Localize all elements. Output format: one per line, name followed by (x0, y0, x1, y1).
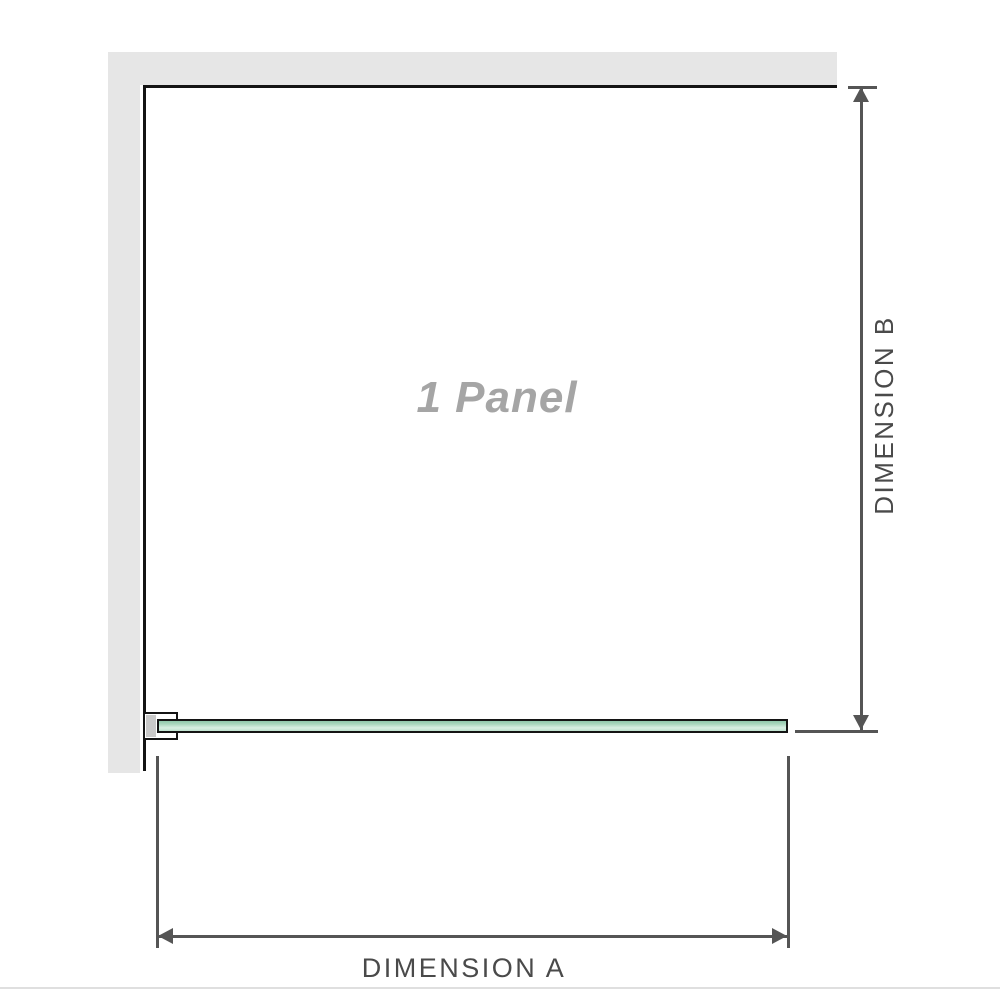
dimension-a-line (158, 935, 788, 938)
panel-extent-top-line (143, 85, 837, 88)
wall-top-bar (108, 52, 837, 85)
dimension-a-label: DIMENSION A (314, 952, 614, 984)
dimension-a-arrow-left-icon (158, 928, 173, 944)
glass-panel (157, 719, 788, 733)
wall-left-bar (108, 52, 140, 773)
panel-count-label: 1 Panel (377, 368, 617, 428)
dimension-b-line (860, 88, 863, 730)
dimension-a-left-extension (156, 756, 159, 948)
dimension-diagram: 1 Panel DIMENSION B DIMENSION A (0, 0, 1000, 1000)
bottom-divider-line (0, 987, 1000, 989)
dimension-b-arrow-up-icon (853, 87, 869, 102)
panel-extent-left-line (143, 85, 146, 771)
bracket-shim (146, 715, 156, 737)
dimension-b-label: DIMENSION B (871, 295, 897, 535)
dimension-b-arrow-down-icon (853, 715, 869, 730)
dimension-a-right-extension (787, 756, 790, 948)
dimension-a-arrow-right-icon (772, 928, 787, 944)
